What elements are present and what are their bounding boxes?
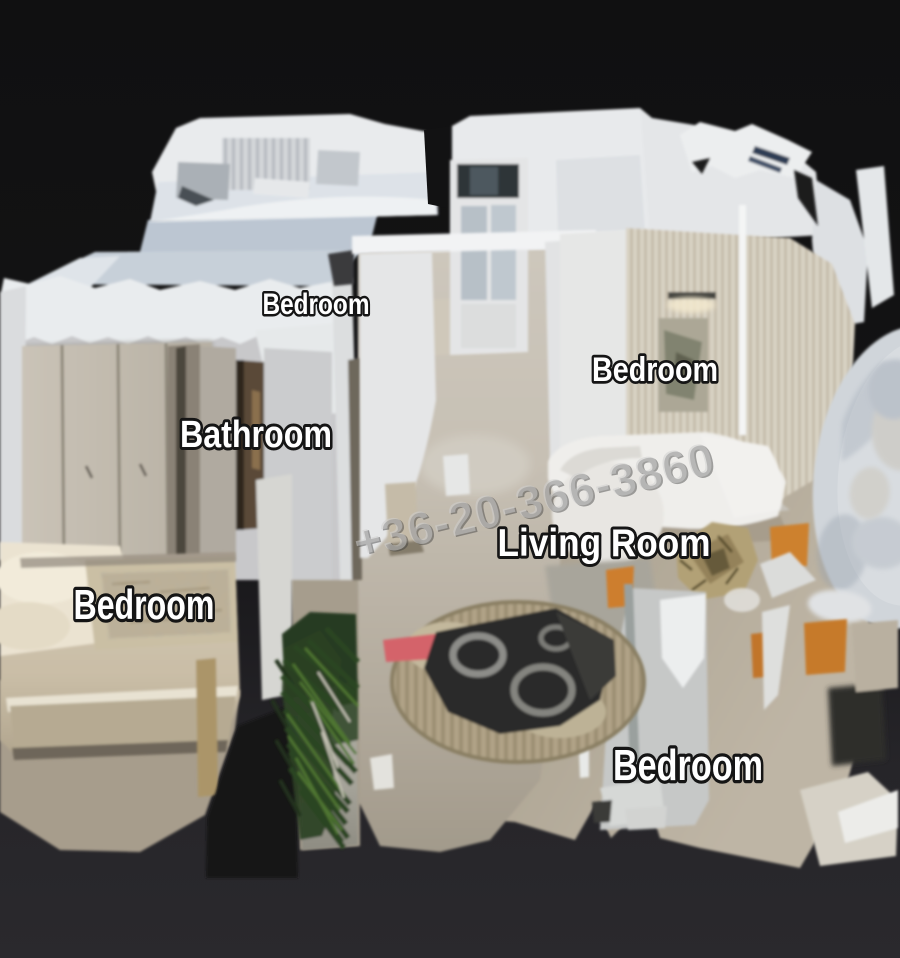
svg-text:Bedroom: Bedroom bbox=[592, 351, 718, 389]
svg-text:Living Room: Living Room bbox=[498, 522, 711, 565]
svg-text:Bedroom: Bedroom bbox=[74, 581, 215, 628]
svg-text:Bedroom: Bedroom bbox=[263, 288, 370, 321]
svg-text:Bathroom: Bathroom bbox=[180, 414, 332, 456]
svg-text:Bedroom: Bedroom bbox=[613, 741, 763, 790]
